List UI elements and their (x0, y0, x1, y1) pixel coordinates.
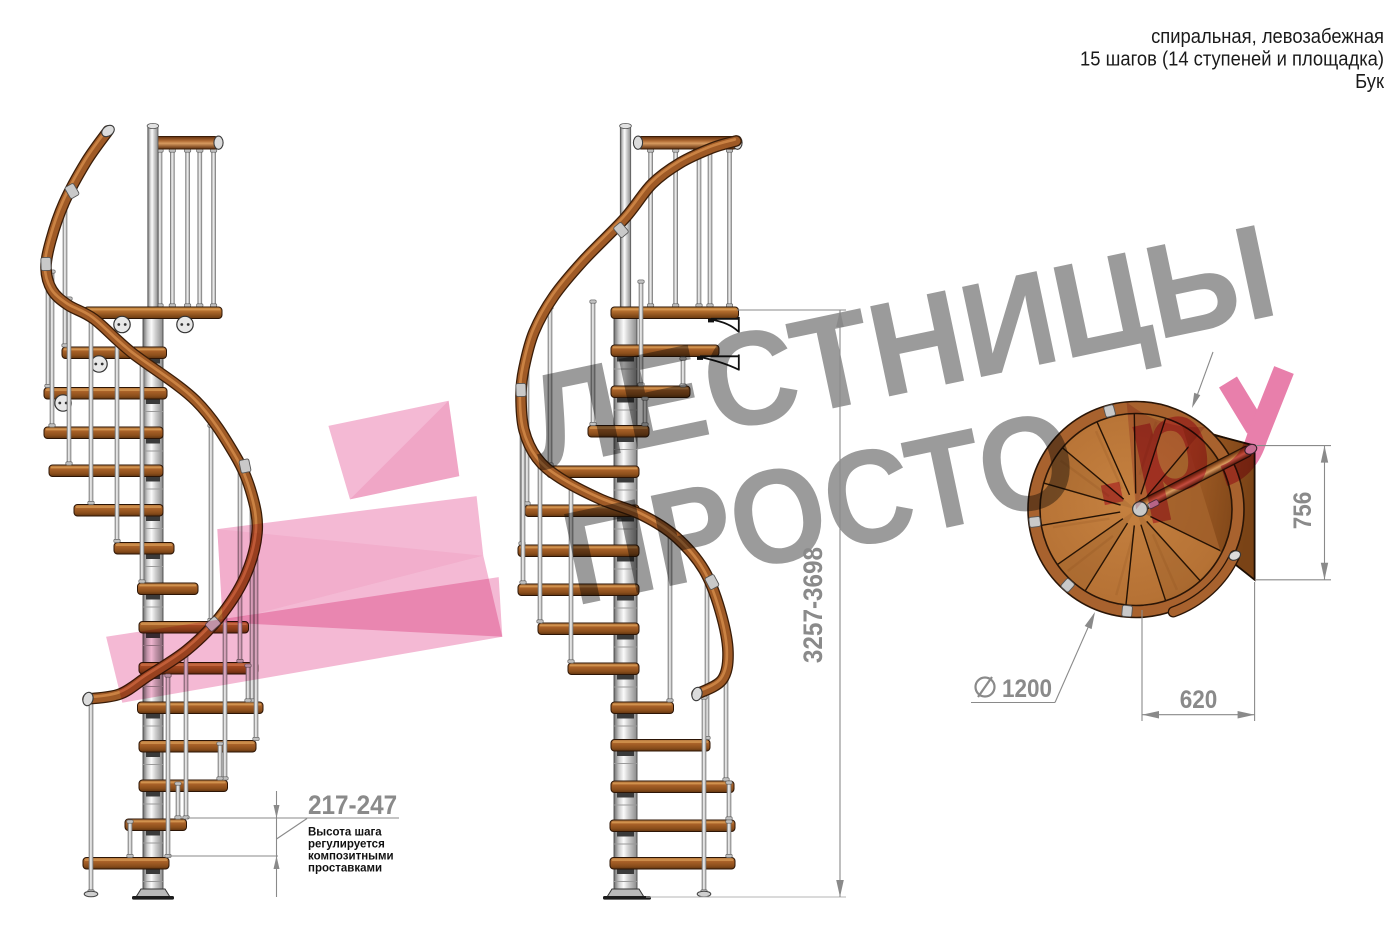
svg-text:3257-3698: 3257-3698 (799, 547, 828, 663)
svg-text:Бук: Бук (1355, 71, 1384, 93)
svg-text:1200: 1200 (1002, 675, 1052, 703)
svg-text:спиральная, левозабежная: спиральная, левозабежная (1151, 26, 1384, 48)
svg-text:15 шагов (14 ступеней и площад: 15 шагов (14 ступеней и площадка) (1080, 49, 1384, 71)
svg-text:217-247: 217-247 (308, 791, 397, 820)
svg-text:проставками: проставками (308, 863, 382, 875)
svg-text:756: 756 (1289, 492, 1317, 530)
svg-text:Высота шага: Высота шага (308, 827, 382, 839)
svg-text:композитными: композитными (308, 851, 394, 863)
svg-text:620: 620 (1180, 686, 1218, 714)
svg-text:регулируется: регулируется (308, 839, 385, 851)
